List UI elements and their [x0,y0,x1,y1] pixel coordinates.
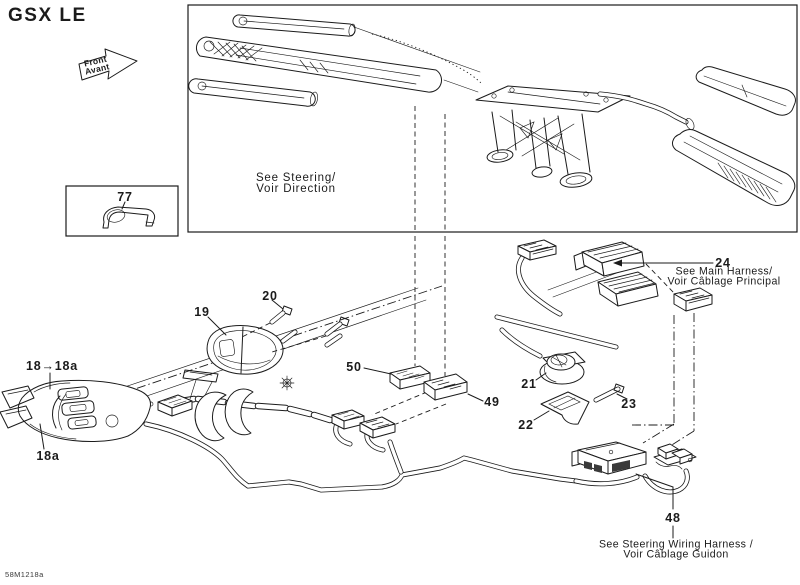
callout-21: 21 [521,377,537,391]
main-harness-assembly [497,240,712,347]
callout-50: 50 [346,360,362,374]
steering-harness-note-line2: Voir Câblage Guidon [599,550,753,560]
callout-23: 23 [621,397,637,411]
main-harness-note-line2: Voir Câblage Principal [667,277,780,287]
gauge-pod-housing [183,325,283,382]
callout-19: 19 [194,305,210,319]
multifunction-switch-housing [0,380,151,441]
steering-riser-assembly [476,86,630,189]
steering-harness-note: See Steering Wiring Harness / Voir Câbla… [599,540,753,559]
see-steering-note-line2: Voir Direction [256,184,336,195]
module-48 [572,442,646,474]
callout-18a: 18a [36,449,59,463]
main-harness-note: See Main Harness/ Voir Câblage Principal [667,267,780,286]
parts-diagram-page: GSX LE Front Avant See Steering/ Voir Di… [0,0,800,585]
grip-heater-hatch [210,42,328,73]
small-screw [280,376,294,390]
clip-77 [103,207,155,228]
callout-77: 77 [117,190,133,204]
handlebar-boot [195,389,253,441]
callout-48: 48 [665,511,681,525]
callout-49: 49 [484,395,500,409]
grip-knurl-hatch [718,163,776,202]
reference-dashdot-lines [632,313,694,453]
relay-bracket-cluster [654,444,696,469]
harness-connectors [332,410,395,450]
callout-22: 22 [518,418,534,432]
document-number: 58M1218a [5,570,44,579]
handlebar-grips [189,15,482,107]
pin-23 [596,384,624,400]
diagram-line-art [0,0,800,585]
callout-18-18a: 18→18a [26,359,78,373]
see-steering-note: See Steering/ Voir Direction [256,173,336,195]
rocker-switch-22 [541,392,589,424]
callout-20: 20 [262,289,278,303]
page-title: GSX LE [8,5,87,27]
handlebar-right-side [600,67,795,206]
